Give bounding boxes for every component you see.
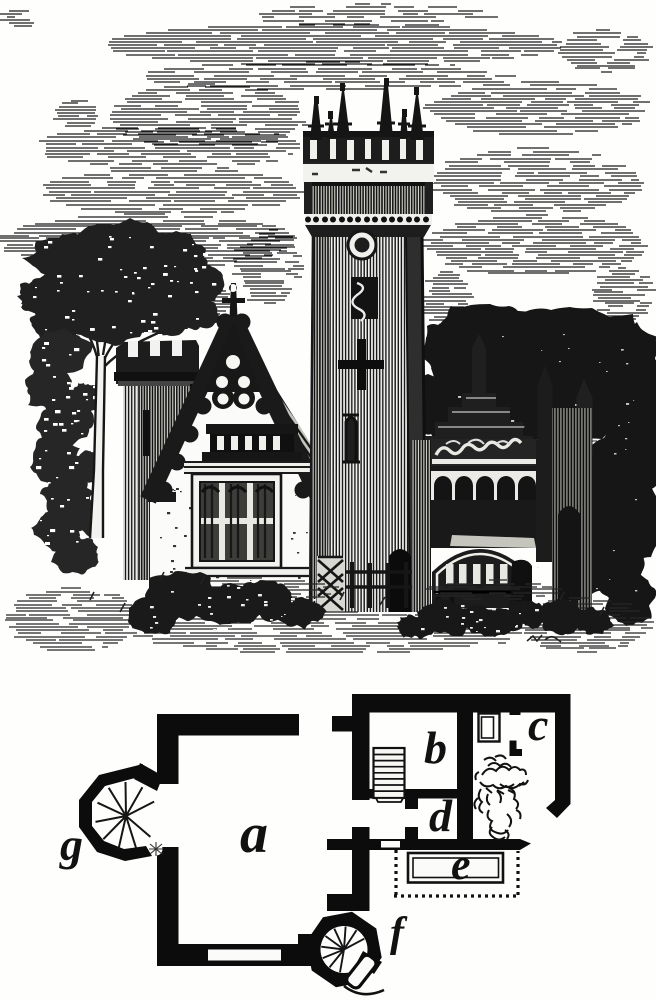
svg-text:b: b [424,722,447,773]
svg-text:d: d [429,790,453,841]
svg-text:a: a [240,803,268,865]
svg-text:e: e [451,840,471,889]
svg-text:c: c [528,699,548,750]
svg-text:g: g [59,819,83,870]
